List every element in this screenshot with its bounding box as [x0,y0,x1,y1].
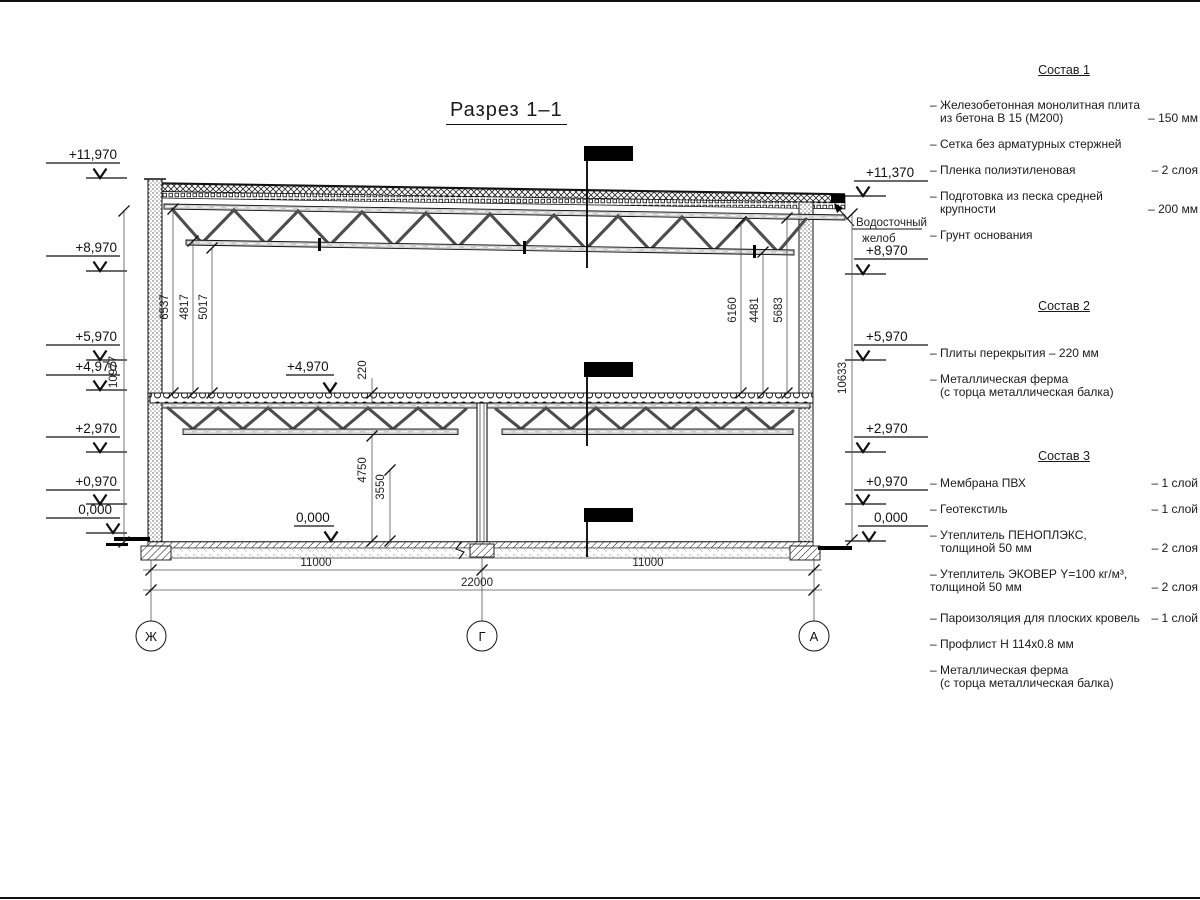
elevation-label: +0,970 [866,474,908,489]
elevation-mark: +0,970 [845,474,928,504]
note-title: Состав 2 [930,300,1198,313]
dim-label-span-right: 11000 [632,557,663,569]
roof-gutter [831,194,845,203]
note-block-sostav-2: Состав 2 – Плиты перекрытия – 220 мм – М… [930,300,1198,412]
right-wall [799,202,813,546]
foundation-right [790,546,820,560]
elevation-mark: 0,000 [46,502,127,533]
dim-label: 10633 [837,362,849,394]
gutter-label-1: Водосточный [856,217,927,229]
elevation-mark: +2,970 [845,421,928,452]
elevation-label: +8,970 [866,243,908,258]
elevation-mark: +8,970 [46,240,127,271]
roof-assembly [160,183,845,209]
note-item: – Железобетонная монолитная плита из бет… [930,99,1198,125]
note-item: – Сетка без арматурных стержней [930,138,1198,151]
dim-label-span-left: 11000 [300,557,331,569]
note-item: – Пароизоляция для плоских кровель – 1 с… [930,612,1198,625]
dim-label: 5017 [198,294,210,320]
floor-truss-web-right [496,408,793,429]
note-item: – Подготовка из песка средней крупности … [930,190,1198,216]
left-wall [148,179,162,546]
interior-elevation-marks: +4,970 0,000 [286,359,338,541]
section-cut-line [584,146,633,557]
elevation-label: +11,370 [866,165,914,180]
floor-truss-web-left [168,408,466,429]
elevation-label: 0,000 [296,510,330,525]
elevation-label: +11,970 [69,147,117,162]
dims-under-floor: 4750 3550 [357,431,396,547]
elevation-label: +2,970 [866,421,908,436]
chord-splice [318,238,321,251]
elevation-mark: +2,970 [46,421,127,452]
note-item: – Утеплитель ЭКОВЕР Y=100 кг/м³, толщино… [930,568,1198,594]
note-item: – Утеплитель ПЕНОПЛЭКС, толщиной 50 мм –… [930,529,1198,555]
axis-label: Ж [145,629,157,644]
center-column [477,403,487,544]
gutter-label-2: желоб [862,233,896,245]
foundation-left [141,546,171,560]
elevation-label: 0,000 [78,502,112,517]
elevation-label: 0,000 [874,510,908,525]
note-item: – Профлист Н 114х0.8 мм [930,638,1198,651]
dim-label: 6160 [727,297,739,323]
dim-label: 4817 [179,294,191,320]
chord-splice [523,241,526,254]
note-title: Состав 1 [930,64,1198,77]
elevation-label: +4,970 [287,359,329,374]
grade-step-right [818,546,852,550]
elevation-label: +5,970 [866,329,908,344]
dims-spans: 11000 11000 22000 [143,557,822,621]
grade-step-left [114,537,150,541]
dim-label: 4481 [749,297,761,323]
note-item: – Плиты перекрытия – 220 мм [930,347,1198,360]
dim-label: 6537 [159,294,171,320]
elevation-label: +8,970 [75,240,117,255]
dim-label: 5683 [773,297,785,323]
elevation-mark-ground: 0,000 [294,510,338,541]
elevation-mark: +11,970 [46,147,127,178]
note-item: – Металлическая ферма (с торца металличе… [930,373,1198,399]
note-block-sostav-3: Состав 3 – Мембрана ПВХ – 1 слой – Геоте… [930,450,1198,703]
elevation-mark: +5,970 [46,329,127,360]
axis-label: А [810,629,819,644]
elevation-mark: +0,970 [46,474,127,504]
dim-total-left: 10977 [108,206,130,548]
dims-interior-right: 6160 4481 5683 [727,213,793,399]
elevation-mark-mid-floor: +4,970 [286,359,337,392]
dim-label: 10977 [108,356,120,388]
elevation-mark: +5,970 [845,329,928,360]
axis-bubbles: Ж Г А [136,621,829,651]
dim-label: 4750 [357,457,369,483]
elevation-mark: +8,970 [845,243,928,274]
elevation-mark: 0,000 [845,510,928,541]
gutter-callout: Водосточный желоб [834,203,927,245]
dim-label: 3550 [375,474,387,500]
elevation-label: +0,970 [75,474,117,489]
grade-step-left-2 [106,543,128,546]
dim-label: 220 [357,360,369,379]
note-item: – Мембрана ПВХ – 1 слой [930,477,1198,490]
foundation-center [470,544,494,557]
axis-label: Г [478,629,485,644]
dims-interior-left: 6537 4817 5017 [159,204,218,399]
elevation-label: +2,970 [75,421,117,436]
hollow-core-slab [150,393,813,403]
elevation-marks-left: +11,970 +8,970 +5,970 +4,970 +2,970 +0,9… [46,147,127,533]
note-block-sostav-1: Состав 1 – Железобетонная монолитная пли… [930,64,1198,255]
note-item: – Геотекстиль – 1 слой [930,503,1198,516]
note-item: – Грунт основания [930,229,1198,242]
note-item: – Пленка полиэтиленовая – 2 слоя [930,164,1198,177]
note-title: Состав 3 [930,450,1198,463]
elevation-mark: +11,370 [845,165,928,196]
note-item: – Металлическая ферма (с торца металличе… [930,664,1198,690]
dim-label-span-total: 22000 [461,577,493,589]
roof-truss [164,204,845,258]
elevation-label: +5,970 [75,329,117,344]
chord-splice [753,245,756,258]
